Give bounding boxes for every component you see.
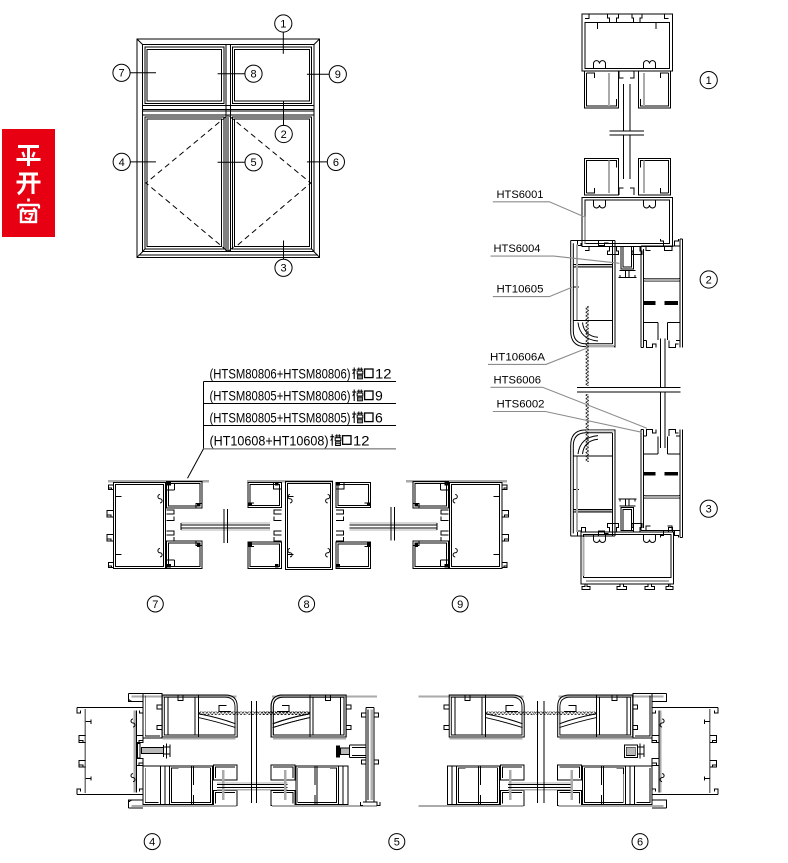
svg-text:(HTSM80806+HTSM80806): (HTSM80806+HTSM80806) (210, 366, 351, 382)
svg-text:1: 1 (280, 18, 286, 30)
svg-text:9: 9 (335, 69, 341, 81)
svg-text:12: 12 (375, 366, 392, 382)
svg-text:6: 6 (375, 410, 383, 426)
svg-text:4: 4 (149, 837, 155, 849)
svg-text:6: 6 (637, 837, 643, 849)
svg-text:9: 9 (457, 599, 463, 611)
svg-text:8: 8 (250, 69, 256, 81)
svg-text:3: 3 (706, 504, 712, 516)
svg-text:2: 2 (281, 129, 287, 141)
svg-text:HTS6002: HTS6002 (497, 399, 545, 411)
svg-text:HT10605: HT10605 (497, 284, 544, 296)
svg-text:4: 4 (119, 157, 125, 169)
svg-text:9: 9 (375, 388, 383, 404)
svg-text:2: 2 (706, 274, 712, 286)
svg-text:(HTSM80805+HTSM80805): (HTSM80805+HTSM80805) (210, 410, 351, 426)
svg-text:HTS6004: HTS6004 (494, 243, 541, 255)
svg-text:7: 7 (152, 599, 158, 611)
svg-text:1: 1 (706, 75, 712, 87)
svg-text:12: 12 (353, 432, 370, 448)
svg-text:HTS6006: HTS6006 (494, 374, 542, 386)
svg-text:5: 5 (251, 157, 257, 169)
svg-text:7: 7 (118, 68, 124, 80)
svg-text:(HTSM80805+HTSM80806): (HTSM80805+HTSM80806) (210, 388, 351, 404)
svg-text:8: 8 (304, 599, 310, 611)
svg-text:5: 5 (394, 837, 400, 849)
svg-text:(HT10608+HT10608): (HT10608+HT10608) (210, 432, 329, 448)
svg-text:6: 6 (333, 157, 339, 169)
svg-text:HT10606A: HT10606A (490, 351, 546, 363)
svg-text:HTS6001: HTS6001 (497, 189, 544, 201)
svg-text:3: 3 (280, 263, 286, 275)
